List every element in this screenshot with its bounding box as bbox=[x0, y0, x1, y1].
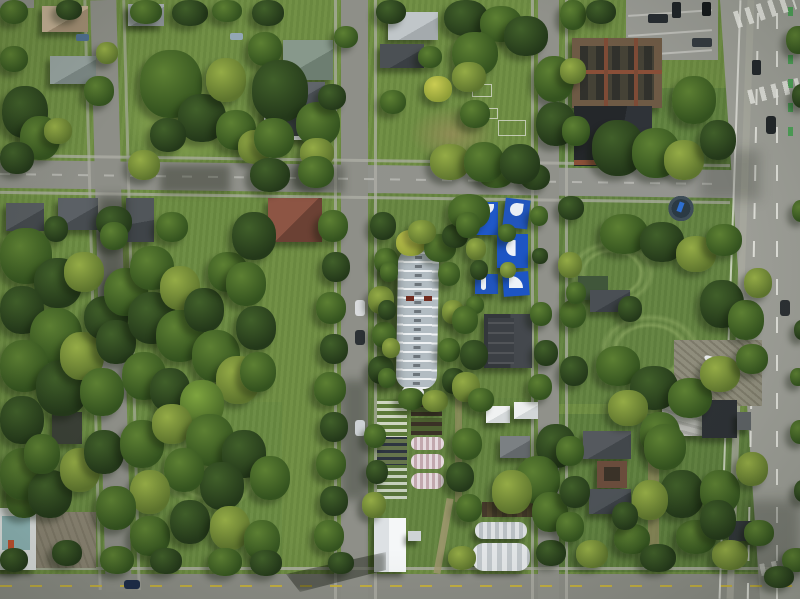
photo-vignette bbox=[0, 0, 800, 599]
aerial-photo-detroit-neighborhood bbox=[0, 0, 800, 599]
